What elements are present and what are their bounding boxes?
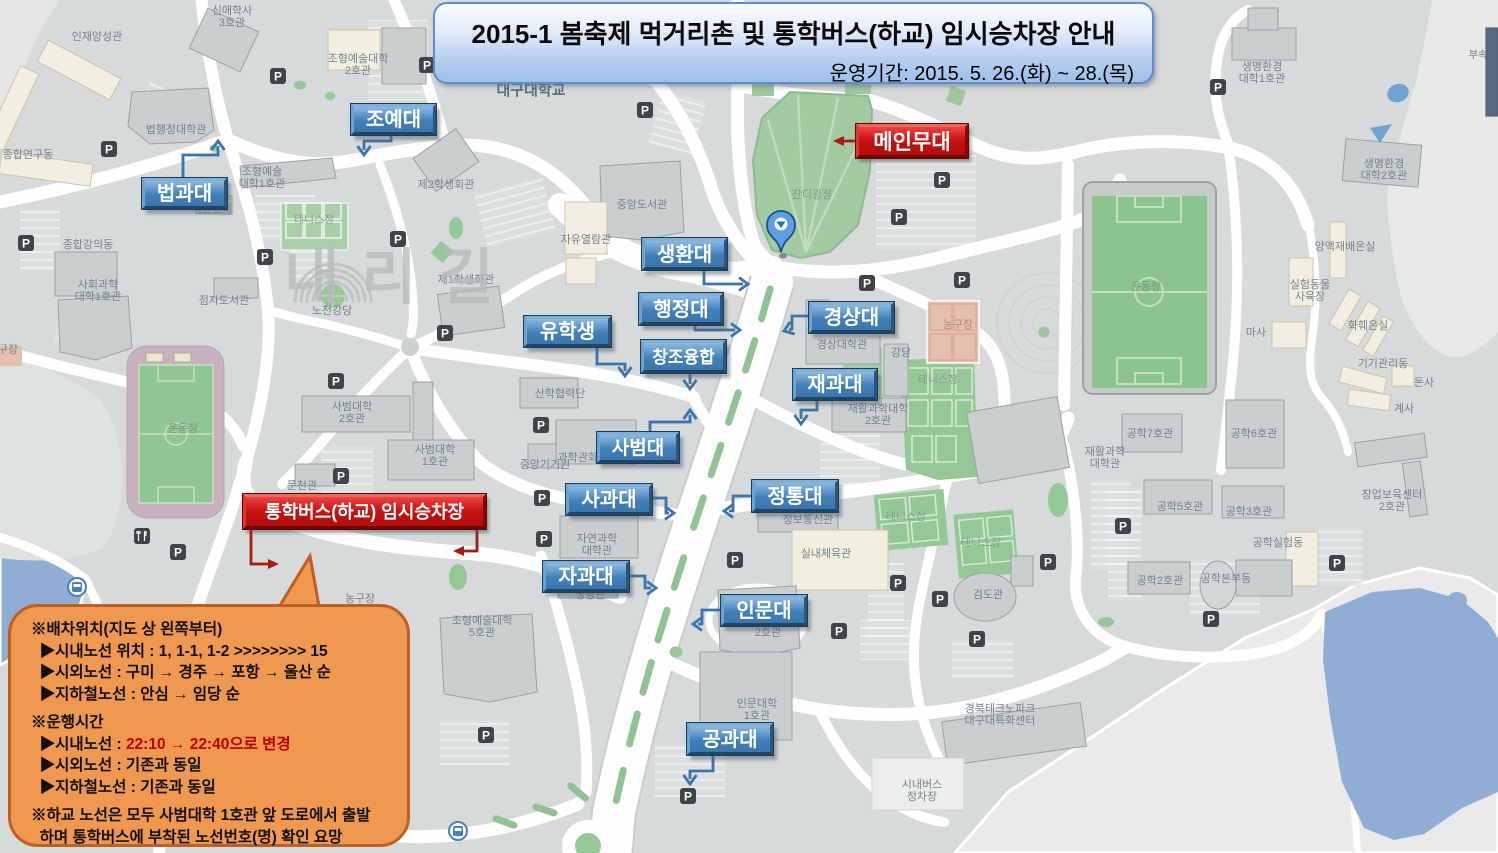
svg-text:강당: 강당 [891, 346, 911, 359]
svg-text:실험동물사육장: 실험동물사육장 [1290, 278, 1330, 303]
svg-text:조형예술대학1호관: 조형예술대학1호관 [239, 165, 286, 190]
svg-text:공학6호관: 공학6호관 [1231, 427, 1278, 440]
svg-text:P: P [684, 790, 692, 804]
svg-text:공학5호관: 공학5호관 [1157, 500, 1204, 513]
svg-text:P: P [337, 470, 345, 484]
svg-text:P: P [1044, 556, 1052, 570]
svg-text:P: P [958, 274, 966, 288]
svg-text:공학7호관: 공학7호관 [1127, 427, 1174, 440]
svg-text:부속: 부속 [1469, 49, 1487, 61]
svg-text:P: P [973, 633, 981, 647]
svg-text:인재양성관: 인재양성관 [72, 30, 123, 43]
svg-text:P: P [332, 375, 340, 389]
svg-text:검도관: 검도관 [973, 588, 1003, 601]
svg-text:생명환경대학2호관: 생명환경대학2호관 [1361, 157, 1408, 182]
svg-text:구장: 구장 [0, 343, 18, 356]
svg-text:P: P [938, 174, 946, 188]
svg-text:내리길: 내리길 [284, 244, 516, 311]
svg-text:P: P [641, 104, 649, 118]
svg-text:공학2호관: 공학2호관 [1137, 574, 1184, 587]
svg-text:점자도서관: 점자도서관 [199, 294, 250, 307]
svg-text:실내체육관: 실내체육관 [801, 547, 852, 560]
svg-text:돈사: 돈사 [1414, 376, 1434, 389]
svg-text:P: P [1207, 613, 1215, 627]
svg-text:운동장: 운동장 [1131, 280, 1161, 293]
svg-text:산학협력단: 산학협력단 [535, 387, 586, 400]
svg-text:시내버스정차장: 시내버스정차장 [902, 778, 942, 803]
svg-text:중앙도서관: 중앙도서관 [617, 198, 668, 211]
svg-text:경북테크노파크대구대특화센터: 경북테크노파크대구대특화센터 [965, 702, 1036, 727]
svg-text:공학본부동: 공학본부동 [1201, 572, 1252, 585]
svg-text:P: P [936, 593, 944, 607]
svg-text:테니스장: 테니스장 [961, 536, 1001, 549]
svg-text:P: P [538, 492, 546, 506]
svg-text:화훼온실: 화훼온실 [1348, 319, 1388, 332]
svg-text:테니스장: 테니스장 [294, 213, 334, 226]
svg-text:테니스장: 테니스장 [918, 373, 958, 386]
svg-text:재활과학대학관: 재활과학대학관 [1085, 444, 1125, 470]
svg-text:P: P [863, 277, 871, 291]
svg-text:P: P [1119, 520, 1127, 534]
svg-text:P: P [274, 70, 282, 84]
svg-text:계사: 계사 [1394, 402, 1414, 415]
svg-text:생명환경대학1호관: 생명환경대학1호관 [1239, 60, 1286, 85]
svg-text:농구장: 농구장 [943, 318, 973, 331]
svg-text:P: P [540, 533, 548, 547]
svg-text:P: P [394, 233, 402, 247]
svg-text:공학3호관: 공학3호관 [1226, 505, 1273, 518]
svg-text:잔디광장: 잔디광장 [792, 188, 832, 201]
svg-text:자연과학대학관: 자연과학대학관 [577, 532, 617, 557]
svg-text:경상대학관: 경상대학관 [817, 338, 868, 351]
svg-text:양액재배온실: 양액재배온실 [1315, 240, 1376, 253]
svg-text:P: P [537, 419, 545, 433]
svg-text:자유열람관: 자유열람관 [561, 233, 612, 246]
svg-text:P: P [482, 729, 490, 743]
svg-text:운동장: 운동장 [168, 422, 198, 435]
svg-text:P: P [835, 625, 843, 639]
svg-text:P: P [441, 327, 449, 341]
svg-text:공학실험동: 공학실험동 [1253, 536, 1304, 549]
svg-text:기기관리동: 기기관리동 [1358, 357, 1409, 370]
svg-text:P: P [895, 211, 903, 225]
svg-text:P: P [22, 237, 30, 251]
svg-text:P: P [894, 577, 902, 591]
svg-text:문천관: 문천관 [287, 478, 317, 492]
svg-text:P: P [105, 143, 113, 157]
svg-text:법행정대학관: 법행정대학관 [146, 123, 207, 136]
svg-text:종합강의동: 종합강의동 [63, 238, 114, 251]
svg-text:P: P [1214, 81, 1222, 95]
svg-text:종합연구동: 종합연구동 [3, 148, 54, 161]
svg-text:P: P [174, 546, 182, 560]
svg-text:P: P [261, 251, 269, 265]
svg-text:P: P [423, 59, 431, 73]
svg-text:P: P [731, 554, 739, 568]
svg-text:마사: 마사 [1246, 326, 1266, 339]
svg-text:테니스장: 테니스장 [886, 510, 926, 523]
svg-text:P: P [1333, 557, 1341, 571]
svg-text:정보통신관: 정보통신관 [783, 513, 834, 526]
svg-text:제2학생회관: 제2학생회관 [418, 178, 475, 191]
svg-text:2호관: 2호관 [755, 626, 781, 639]
svg-text:사회과학대학1호관: 사회과학대학1호관 [75, 278, 122, 303]
